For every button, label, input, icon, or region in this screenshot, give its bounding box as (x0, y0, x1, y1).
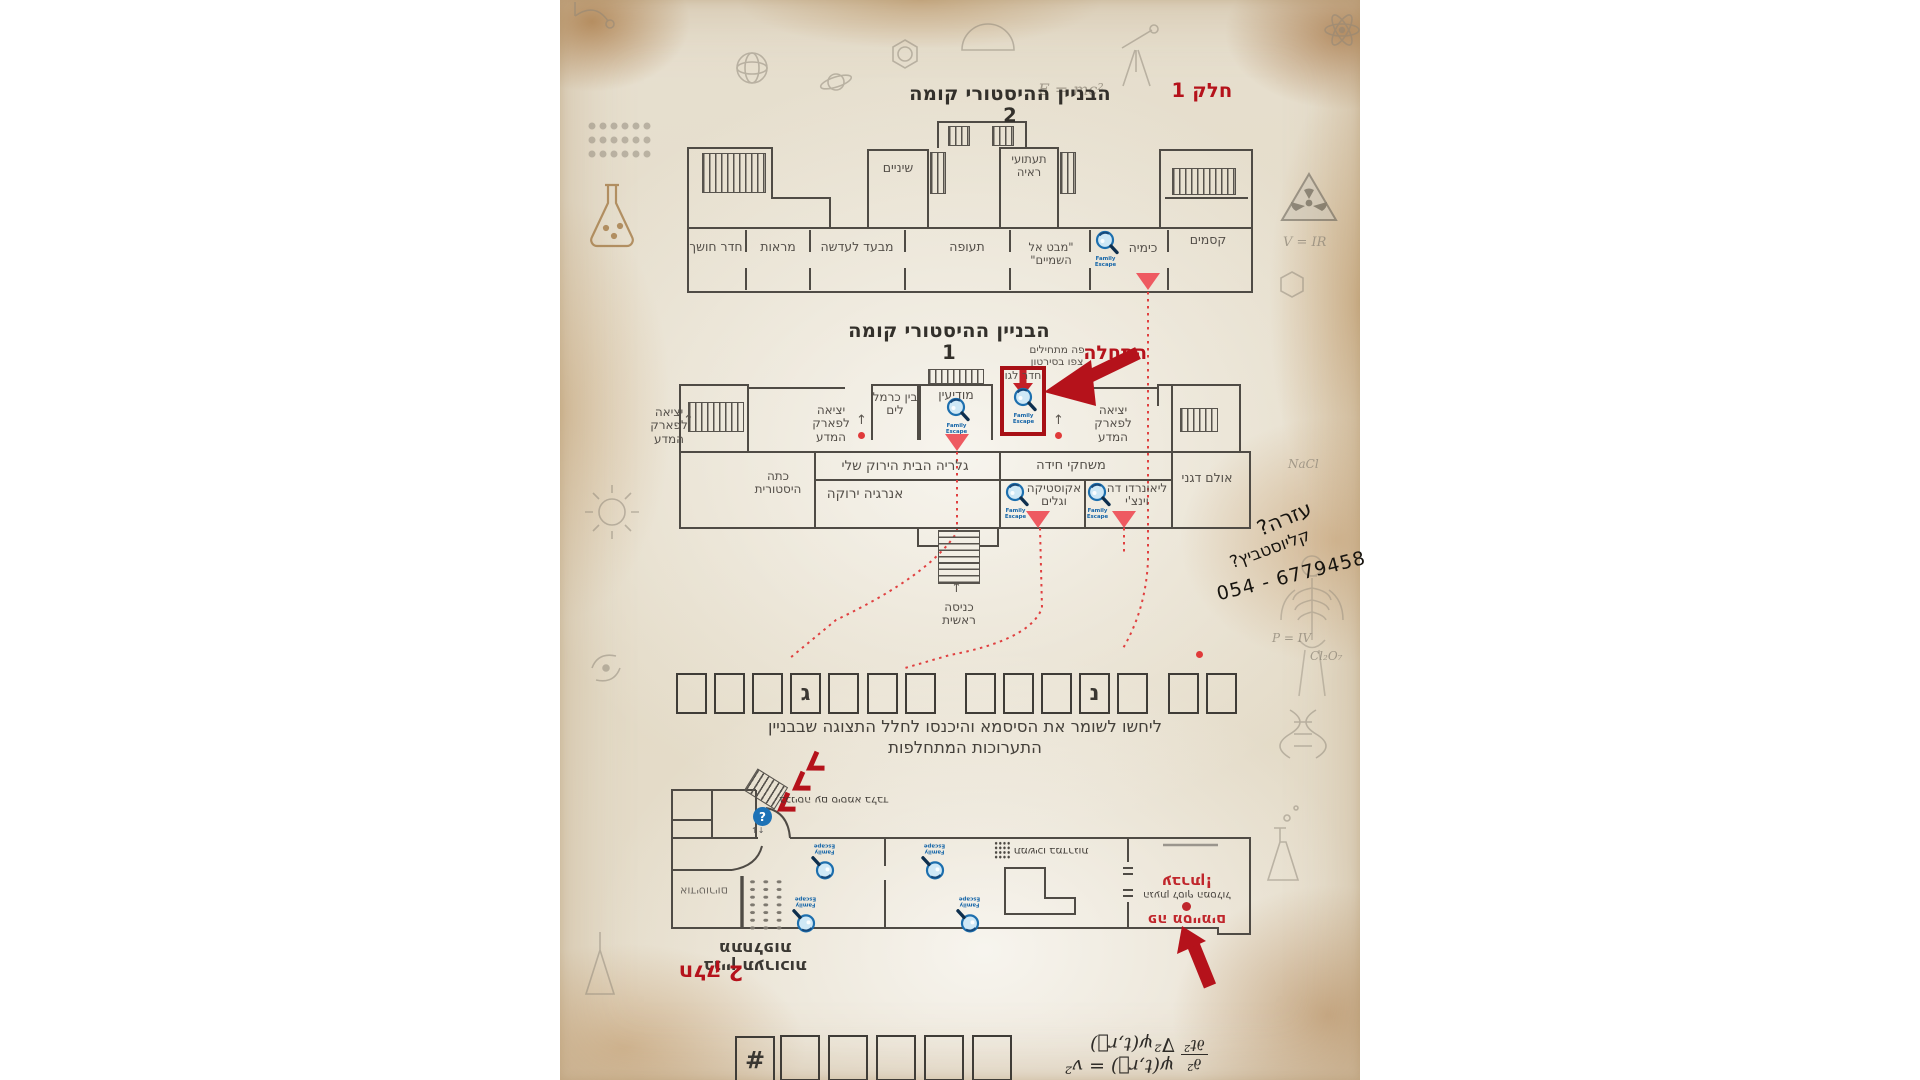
password-box (1168, 673, 1199, 714)
family-escape-label: Family Escape (792, 895, 819, 906)
family-escape-label: Family Escape (1092, 257, 1119, 268)
stairs-floor2-right (1172, 168, 1236, 195)
family-escape-logo: Family Escape (1010, 387, 1037, 425)
dt2: ∂t² (1181, 1038, 1208, 1056)
info-desk-icon: ? (753, 807, 772, 826)
magnifier-icon (1003, 482, 1029, 507)
up-arrow-icon: ↑ (856, 413, 867, 428)
family-escape-label: Family Escape (811, 842, 838, 853)
magnifier-icon (944, 397, 970, 422)
password-box (1003, 673, 1034, 714)
equation-fraction: ∂² ∂t² (1181, 1038, 1208, 1073)
d2: ∂² (1184, 1056, 1205, 1073)
keypad-icon (994, 841, 1010, 860)
family-escape-label: Family Escape (1002, 509, 1029, 520)
stairs-floor1-right (1180, 408, 1218, 432)
password-box (828, 673, 859, 714)
start-label: התחלה (1085, 343, 1147, 364)
equation-rhs: ψ(t,r⃗) = v² ∇²ψ(t,r⃗) (1016, 1033, 1175, 1077)
family-escape-logo: Family Escape (956, 895, 983, 933)
password-box (714, 673, 745, 714)
room-leonardo: ליאונרדו דה וינצ'י (1106, 482, 1168, 509)
auditorium-label: אודיטוריום (674, 884, 734, 896)
cl2o7-doodle: Cl₂O₇ (1310, 649, 1343, 663)
magnifier-icon (922, 855, 948, 880)
family-escape-logo: Family Escape (921, 842, 948, 880)
exit-dot-left (858, 432, 865, 439)
answer-box (876, 1035, 916, 1080)
room-aviation: תעופה (925, 240, 1009, 254)
question-glyph: ? (759, 810, 766, 824)
magnifier-icon (1011, 387, 1037, 412)
family-escape-label: Family Escape (921, 842, 948, 853)
map-pin-info (945, 434, 969, 451)
room-teeth: שיניים (870, 161, 926, 175)
path-end-dot (1196, 651, 1203, 658)
password-letter: נ (1090, 681, 1100, 706)
room-sky-view: "מבט אל השמיים" (1008, 241, 1094, 267)
finish-here: פה מסיימים (1140, 911, 1234, 927)
family-escape-label: Family Escape (956, 895, 983, 906)
up-arrow-icon: ↑ (951, 581, 962, 596)
room-mirrors: מראות (746, 240, 810, 254)
room-dark-room: חדר חושך (682, 240, 750, 254)
radiation-doodle (1282, 174, 1336, 220)
map-pin-chemistry (1136, 273, 1160, 290)
auditorium-seats (746, 878, 786, 931)
password-box (1117, 673, 1148, 714)
part1-label: חלק 1 (1170, 80, 1234, 102)
magnifier-icon (793, 908, 819, 933)
stairs-main-entrance (938, 530, 980, 584)
nacl-doodle: NaCl (1287, 457, 1319, 471)
password-box (965, 673, 996, 714)
finish-line: הגעתן לסוף המסלול (1134, 889, 1240, 900)
map-pin-acoustics (1026, 511, 1050, 528)
floor2-title: הבניין ההיסטורי קומה 2 (905, 83, 1115, 127)
room-historic-class: כתה היסטורית (748, 470, 808, 497)
updown-arrows-icon: ↑↓ (751, 826, 764, 835)
stairs-floor1-info (928, 369, 984, 384)
stairs-floor2-mid2 (1060, 152, 1076, 194)
password-box: נ (1079, 673, 1110, 714)
wave-equation: ∂² ∂t² ψ(t,r⃗) = v² ∇²ψ(t,r⃗) (1016, 1026, 1208, 1080)
room-through-lens: מבעד לעדשה (815, 240, 899, 254)
room-chemistry: כימיה (1120, 241, 1166, 255)
room-degani-hall: אולם דגני (1178, 471, 1236, 485)
up-arrow-icon: ↑ (683, 413, 694, 428)
start-hint: פה מתחילים צפו בסירטון (1024, 345, 1090, 369)
hash-box: # (735, 1036, 775, 1080)
answer-box (828, 1035, 868, 1080)
entry-note: בכניסה עם סיסמא בלבד (778, 793, 890, 805)
room-lego: חדר לגו (1000, 370, 1046, 382)
family-escape-logo: Family Escape (792, 895, 819, 933)
magnifier-icon (1093, 230, 1119, 255)
password-box (905, 673, 936, 714)
stairs-floor2-left (702, 153, 766, 193)
magnifier-icon (812, 855, 838, 880)
exit-label-right: יציאה לפארק המדע (1080, 404, 1146, 444)
finish-exclaim: עברתן! (1158, 873, 1216, 890)
family-escape-logo: Family Escape (1084, 482, 1111, 520)
piv-doodle: P = IV (1271, 631, 1312, 645)
password-box (752, 673, 783, 714)
family-escape-logo: Family Escape (811, 842, 838, 880)
answer-box (780, 1035, 820, 1080)
password-box (1206, 673, 1237, 714)
family-escape-label: Family Escape (1084, 509, 1111, 520)
family-escape-logo: Family Escape (1092, 230, 1119, 268)
password-box (676, 673, 707, 714)
room-carmel: בין כרמל לים (872, 391, 918, 418)
family-escape-logo: Family Escape (943, 397, 970, 435)
password-box (1041, 673, 1072, 714)
room-puzzle-games: משחקי חידה (1028, 459, 1114, 474)
magnifier-icon (957, 908, 983, 933)
vir-doodle: V = IR (1283, 235, 1327, 250)
flask-doodle (591, 185, 633, 246)
main-entrance-label: כניסה ראשית (926, 601, 992, 628)
exit-label-inner-left: יציאה לפארק המדע (798, 404, 864, 444)
room-green-energy: אנרגיה ירוקה (815, 487, 915, 502)
stairs-floor2-mid1 (930, 152, 946, 194)
answer-box (924, 1035, 964, 1080)
family-escape-logo: Family Escape (1002, 482, 1029, 520)
room-illusions: תעתועי ראיה (1002, 153, 1056, 179)
scanned-map-page: E = mc² V = IR NaCl P = IV Cl₂O₇ (0, 0, 1920, 1080)
part2-label: חלק 2 (672, 960, 750, 984)
stairs-note: תמשיכו במדרגות (1012, 844, 1090, 856)
hash-glyph: # (745, 1045, 765, 1073)
floor2-walls (688, 122, 1252, 292)
room-magic: קסמים (1178, 233, 1238, 247)
family-escape-label: Family Escape (943, 424, 970, 435)
password-instruction: ליחשו לשומר את הסיסמא והיכנסו לחלל התצוג… (760, 717, 1170, 758)
stairs-floor2-top1 (948, 126, 970, 146)
family-escape-label: Family Escape (1010, 414, 1037, 425)
password-box: ג (790, 673, 821, 714)
room-acoustics: אקוסטיקה וגלים (1024, 482, 1084, 509)
room-green-house: גלריה הבית הירוק שלי (840, 459, 970, 474)
magnifier-icon (1085, 482, 1111, 507)
password-letter: ג (801, 681, 811, 706)
answer-box (972, 1035, 1012, 1080)
finish-dot (1182, 902, 1191, 911)
password-box (867, 673, 898, 714)
map-pin-leonardo (1112, 511, 1136, 528)
stairs-floor2-top2 (992, 126, 1014, 146)
exit-dot-right (1055, 432, 1062, 439)
up-arrow-icon: ↑ (1053, 413, 1064, 428)
